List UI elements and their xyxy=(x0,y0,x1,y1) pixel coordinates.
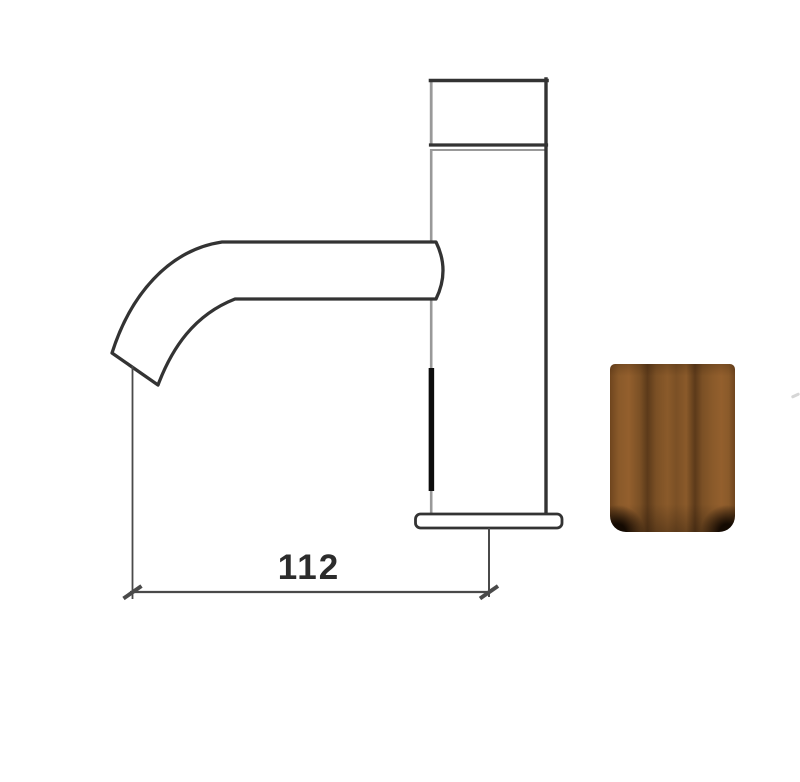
base-plate xyxy=(416,514,563,528)
dimension-label: 112 xyxy=(278,548,340,587)
finish-swatch-bronze xyxy=(610,364,735,532)
faucet-dark-outline xyxy=(112,79,562,528)
drawing-canvas: 112 xyxy=(0,0,800,782)
spout-outline xyxy=(112,242,443,385)
